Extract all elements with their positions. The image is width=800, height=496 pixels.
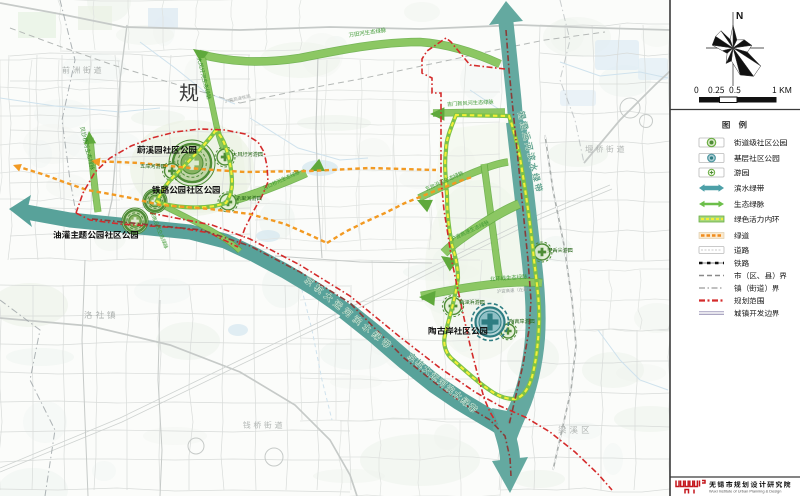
svg-text:0.5: 0.5 xyxy=(729,84,741,96)
svg-text:前洲街道: 前洲街道 xyxy=(62,65,104,76)
svg-text:陶吉岸游园: 陶吉岸游园 xyxy=(509,318,535,325)
svg-text:孟里河游园: 孟里河游园 xyxy=(235,195,262,202)
svg-text:五岸河游园: 五岸河游园 xyxy=(140,163,166,170)
svg-text:规划范围: 规划范围 xyxy=(733,295,765,306)
svg-text:钱桥街道: 钱桥街道 xyxy=(242,420,285,431)
svg-text:绿色活力内环: 绿色活力内环 xyxy=(734,214,780,225)
svg-text:铁路: 铁路 xyxy=(733,258,750,269)
svg-text:街道级社区公园: 街道级社区公园 xyxy=(734,137,788,148)
svg-text:0.25: 0.25 xyxy=(708,84,725,96)
svg-text:0: 0 xyxy=(694,84,699,96)
svg-text:基层社区公园: 基层社区公园 xyxy=(734,153,780,164)
svg-text:规: 规 xyxy=(179,77,199,106)
svg-text:Wuxi Institute of Urban Pl: Wuxi Institute of Urban Planning & Desig… xyxy=(709,489,781,495)
svg-text:洛社镇: 洛社镇 xyxy=(83,309,119,321)
svg-text:无锡市规划设计研究院: 无锡市规划设计研究院 xyxy=(709,479,792,489)
svg-text:梅泾浜游园: 梅泾浜游园 xyxy=(459,299,485,306)
svg-text:游园: 游园 xyxy=(733,167,750,178)
svg-text:市（区、县）界: 市（区、县）界 xyxy=(734,270,788,281)
svg-text:绿道: 绿道 xyxy=(734,230,750,241)
svg-text:滨水绿带: 滨水绿带 xyxy=(734,183,765,194)
svg-text:N: N xyxy=(736,7,743,22)
svg-text:铁路公园社区公园: 铁路公园社区公园 xyxy=(152,184,221,196)
svg-text:道路: 道路 xyxy=(734,245,750,256)
svg-text:堰桥街道: 堰桥街道 xyxy=(585,144,627,155)
svg-text:陶古岸社区公园: 陶古岸社区公园 xyxy=(428,325,489,337)
svg-text:镇（街道）界: 镇（街道）界 xyxy=(734,283,780,294)
svg-text:大风圩河游园: 大风圩河游园 xyxy=(232,151,263,158)
svg-text:梁溪区: 梁溪区 xyxy=(558,424,593,436)
svg-text:蔚溪园社区公园: 蔚溪园社区公园 xyxy=(136,144,198,156)
svg-text:生态绿脉: 生态绿脉 xyxy=(734,199,765,210)
svg-text:1 KM: 1 KM xyxy=(772,84,792,96)
svg-text:油灌主题公园社区公园: 油灌主题公园社区公园 xyxy=(52,229,139,241)
svg-text:茭舌尖游园: 茭舌尖游园 xyxy=(547,247,573,254)
svg-text:城镇开发边界: 城镇开发边界 xyxy=(734,308,780,319)
svg-text:图 例: 图 例 xyxy=(722,119,750,131)
